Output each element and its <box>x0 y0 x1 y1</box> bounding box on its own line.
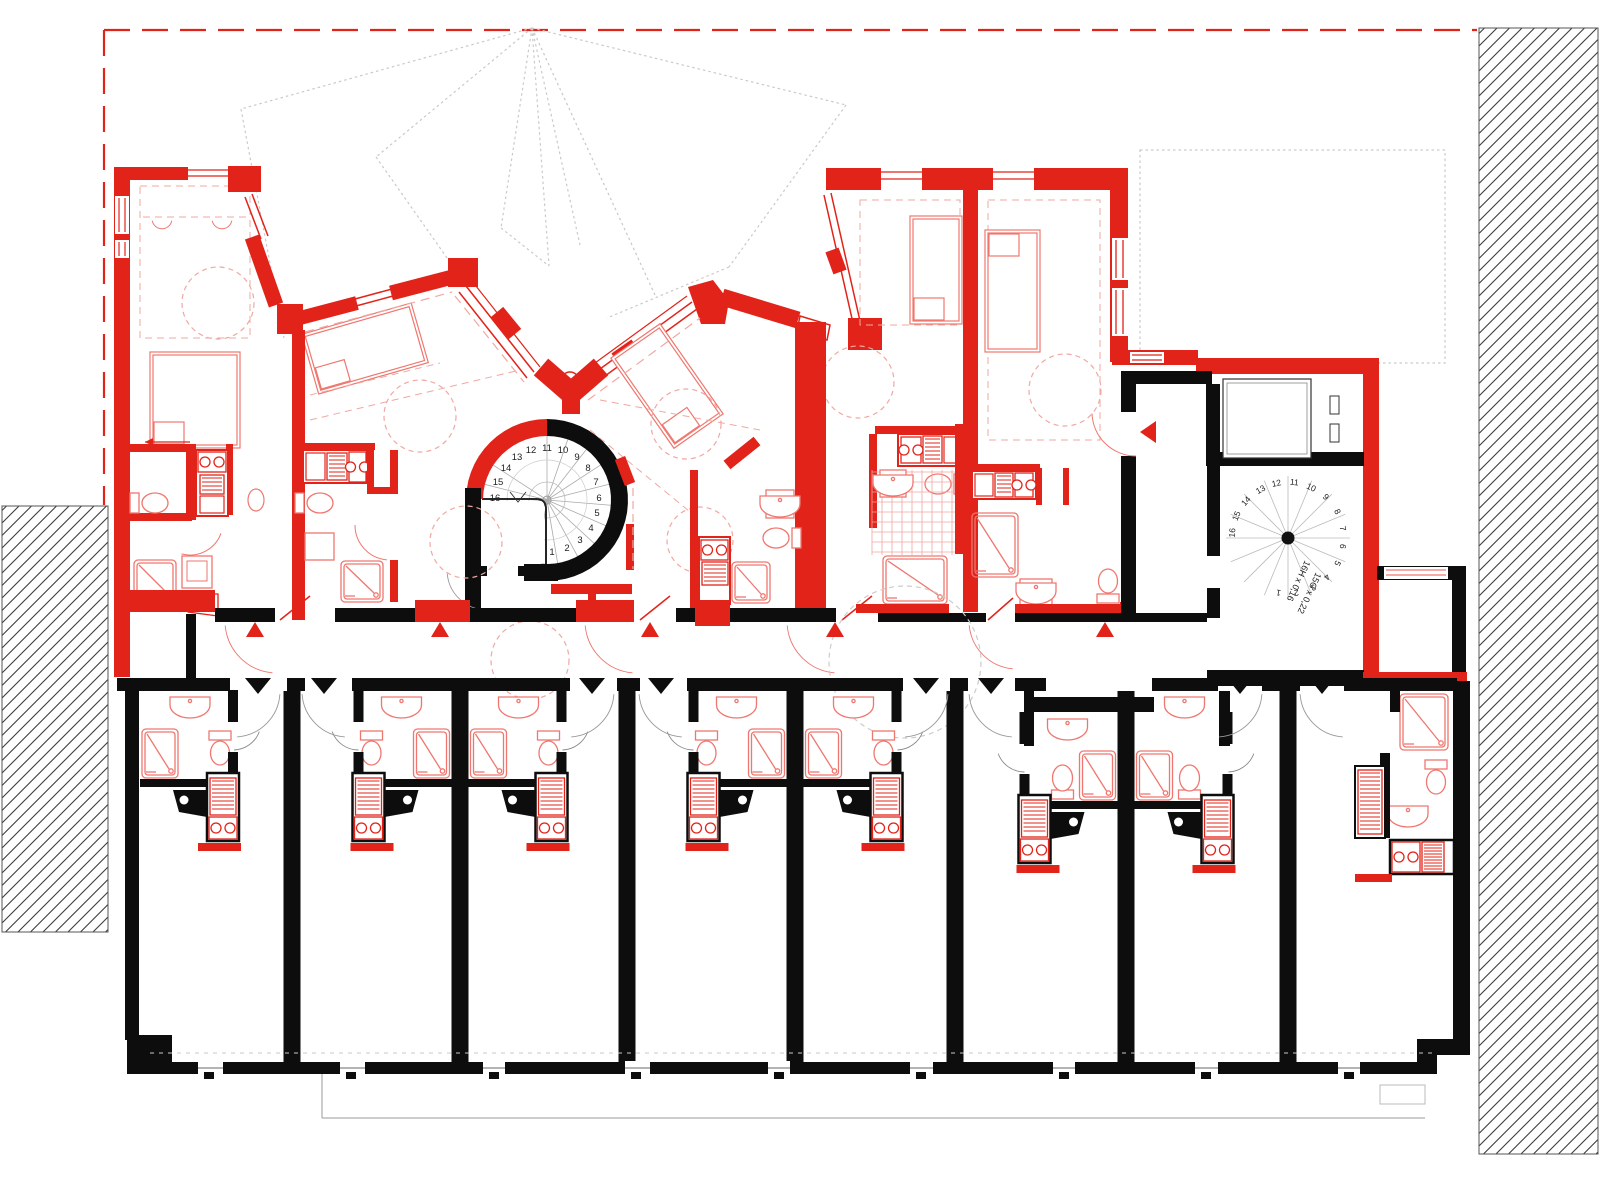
svg-text:10: 10 <box>558 445 569 456</box>
svg-text:16: 16 <box>490 493 501 504</box>
svg-text:14: 14 <box>501 463 512 474</box>
svg-text:12: 12 <box>526 445 537 456</box>
svg-text:9: 9 <box>574 452 579 463</box>
svg-text:3: 3 <box>577 535 582 546</box>
svg-text:11: 11 <box>542 443 552 454</box>
svg-text:4: 4 <box>588 523 593 534</box>
svg-text:11: 11 <box>1289 477 1299 488</box>
svg-text:1: 1 <box>549 547 554 558</box>
svg-text:6: 6 <box>596 493 601 504</box>
svg-text:8: 8 <box>585 463 590 474</box>
svg-text:15: 15 <box>493 477 504 488</box>
svg-text:2: 2 <box>564 543 569 554</box>
svg-text:7: 7 <box>593 477 598 488</box>
svg-text:13: 13 <box>512 452 523 463</box>
svg-text:16: 16 <box>1227 527 1238 538</box>
svg-text:5: 5 <box>594 508 599 519</box>
